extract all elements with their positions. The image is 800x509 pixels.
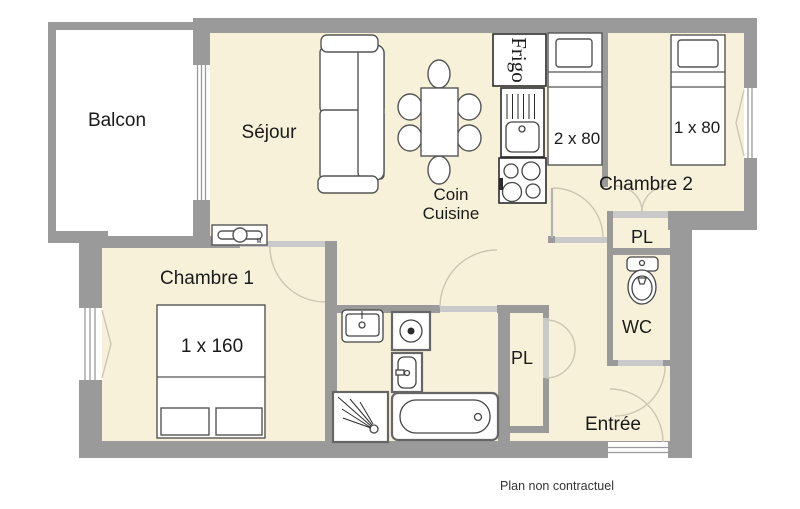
washing-machine — [392, 312, 430, 350]
wall-wc-left — [607, 211, 613, 366]
chair — [428, 60, 450, 88]
label-coin-cuisine-2: Cuisine — [423, 204, 480, 223]
label-wc: WC — [622, 317, 652, 337]
wall-bath-right — [498, 305, 510, 441]
chair — [457, 125, 481, 151]
balcony-rail-top — [48, 22, 193, 30]
label-balcon: Balcon — [88, 110, 146, 131]
chair — [398, 94, 422, 120]
wall-south — [79, 441, 692, 458]
kitchen-sink — [501, 88, 544, 157]
label-bed-1x80: 1 x 80 — [674, 118, 720, 137]
label-bed-1x160: 1 x 160 — [181, 336, 243, 357]
balcony-window — [193, 65, 210, 200]
label-sejour: Séjour — [242, 122, 298, 143]
chair — [457, 94, 481, 120]
wall-north — [193, 18, 757, 33]
floor-plan-svg: Balcon Séjour Coin Cuisine Frigo 2 x 80 … — [0, 0, 800, 509]
single-bed-1x80 — [671, 35, 725, 165]
label-pl-upper: PL — [631, 227, 653, 247]
label-pl-lower: PL — [511, 348, 533, 368]
stove — [499, 158, 546, 203]
label-bed-2x80: 2 x 80 — [554, 129, 600, 148]
label-entree: Entrée — [585, 414, 641, 435]
double-bed-1x160 — [157, 305, 265, 438]
water-heater — [392, 353, 422, 392]
label-disclaimer: Plan non contractuel — [500, 479, 614, 493]
sofa — [318, 35, 384, 193]
label-frigo: Frigo — [507, 37, 531, 83]
bathtub — [392, 393, 498, 440]
wall-pl-lower-bottom — [503, 426, 549, 433]
dining-table — [421, 88, 458, 156]
label-chambre2: Chambre 2 — [599, 174, 693, 195]
floor-plan: Balcon Séjour Coin Cuisine Frigo 2 x 80 … — [0, 0, 800, 509]
washbasin — [342, 310, 383, 342]
wall-wc-bottom-right — [663, 360, 675, 366]
wall-pl-upper-bottom — [607, 248, 675, 255]
balcony-rail-bottom — [48, 231, 108, 243]
chair — [428, 156, 450, 184]
balcony-rail-left — [48, 22, 56, 243]
toilet — [627, 257, 658, 304]
wall-wc-bottom-left — [607, 360, 618, 366]
label-chambre1: Chambre 1 — [160, 268, 254, 289]
label-coin-cuisine-1: Coin — [434, 185, 469, 204]
entry-door-threshold — [608, 442, 668, 458]
chair — [398, 125, 422, 151]
wall-chambre2-left — [602, 33, 608, 187]
label-radiator-tag: M — [257, 239, 262, 245]
shower — [333, 392, 388, 442]
